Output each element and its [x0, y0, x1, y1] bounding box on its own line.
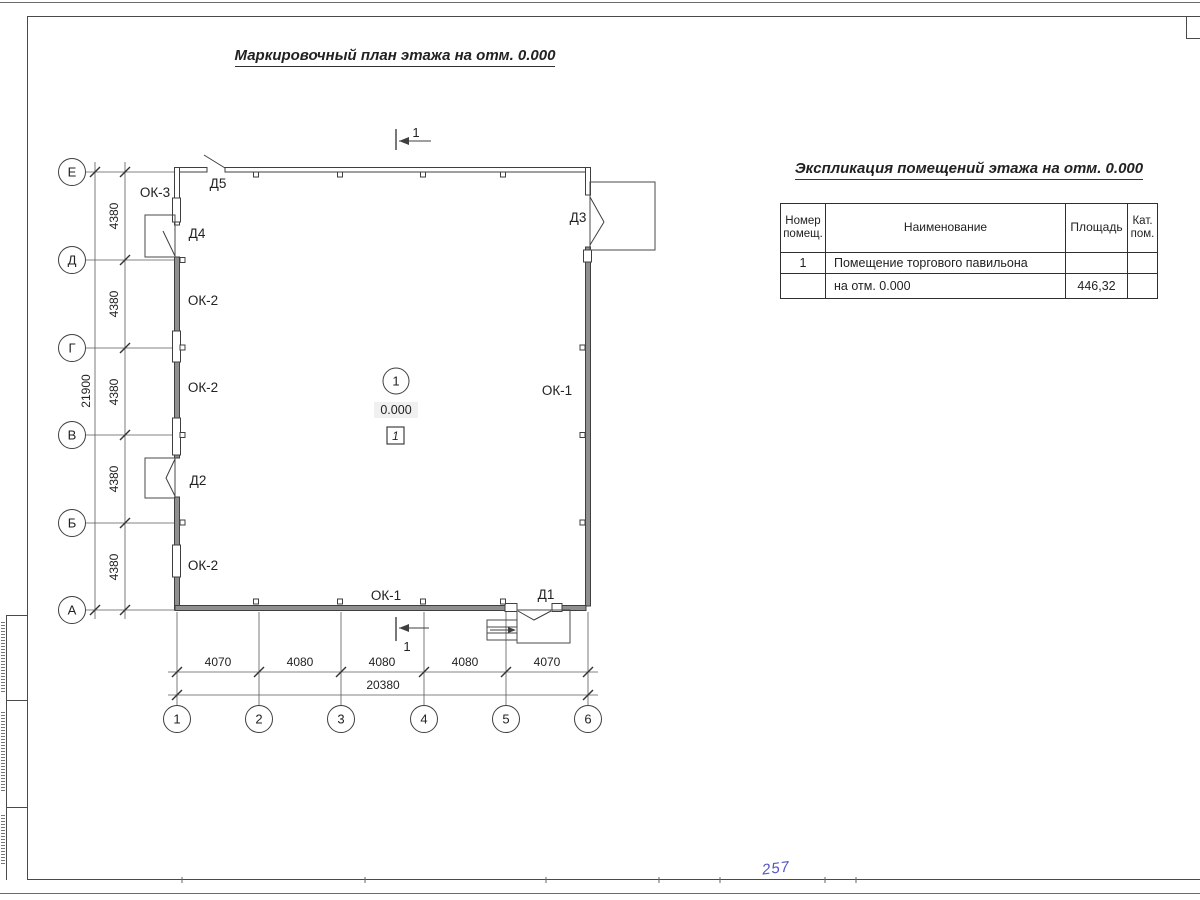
- dim-4380: 4380: [107, 202, 121, 229]
- section-number: 1: [403, 639, 410, 654]
- column-ticks: [180, 172, 585, 604]
- plan-labels: Д5 ОК-3 Д4 ОК-2 ОК-2 Д2 ОК-2 ОК-1 ОК-1 Д…: [140, 176, 587, 603]
- room-number-bubble: 1: [392, 374, 399, 389]
- axis-bubbles: [59, 159, 602, 733]
- dimension-texts: 4380 4380 4380 4380 4380 21900 4070 4080…: [79, 202, 561, 692]
- door-swing-d2: [166, 459, 175, 496]
- dim-4080: 4080: [287, 655, 314, 669]
- porch-d4: [145, 215, 175, 257]
- window-ok2: [173, 418, 181, 455]
- top-wall: [225, 168, 590, 173]
- axis-label-4: 4: [420, 712, 427, 727]
- door-swing-d3: [590, 197, 604, 222]
- axis-labels: Е Д Г В Б А 1 2 3 4 5 6: [68, 165, 592, 727]
- drawing-sheet: Маркировочный план этажа на отм. 0.000 Э…: [0, 0, 1200, 900]
- axis-label-6: 6: [584, 712, 591, 727]
- axis-label-G: Г: [68, 341, 75, 356]
- handwritten-page-mark: 257: [761, 858, 791, 878]
- window-ok1: [584, 250, 592, 262]
- label-window-ok2: ОК-2: [188, 558, 218, 573]
- window-ok2: [173, 331, 181, 362]
- door-swing-d5: [204, 155, 225, 168]
- label-window-ok1: ОК-1: [542, 383, 572, 398]
- door-swings: [163, 155, 604, 620]
- dim-4080: 4080: [452, 655, 479, 669]
- door-swing-d4: [163, 231, 175, 256]
- dim-4380: 4380: [107, 553, 121, 580]
- dim-total-21900: 21900: [79, 374, 93, 408]
- floor-plan-drawing: 4380 4380 4380 4380 4380 21900 4070 4080…: [0, 0, 1200, 900]
- window-ok3: [173, 198, 181, 222]
- axis-label-V: В: [68, 428, 77, 443]
- frame-ticks: [182, 877, 856, 883]
- axis-label-1: 1: [173, 712, 180, 727]
- door-swing-d3: [590, 222, 604, 245]
- dimension-ticks: [90, 167, 593, 700]
- dimension-lines: [95, 162, 598, 695]
- bottom-wall: [175, 606, 517, 611]
- dim-4080: 4080: [369, 655, 396, 669]
- axis-label-5: 5: [502, 712, 509, 727]
- door-swing-d1: [518, 611, 551, 620]
- label-door-d1: Д1: [538, 587, 555, 602]
- label-window-ok1: ОК-1: [371, 588, 401, 603]
- steps-direction-arrow: [490, 627, 516, 633]
- axis-extension-lines: [86, 172, 588, 706]
- label-door-d5: Д5: [210, 176, 227, 191]
- porch-d2: [145, 458, 175, 498]
- axis-label-3: 3: [337, 712, 344, 727]
- label-window-ok3: ОК-3: [140, 185, 170, 200]
- axis-label-B: Б: [68, 516, 77, 531]
- label-door-d4: Д4: [189, 226, 206, 241]
- axis-label-A: А: [68, 603, 77, 618]
- elevation-mark: 0.000: [380, 403, 411, 417]
- section-mark-top: 1: [396, 125, 431, 150]
- dim-4380: 4380: [107, 465, 121, 492]
- label-window-ok2: ОК-2: [188, 380, 218, 395]
- room-tag: 1 0.000 1: [374, 368, 418, 444]
- axis-label-E: Е: [68, 165, 77, 180]
- porch-d3: [590, 182, 655, 250]
- section-number: 1: [412, 125, 419, 140]
- dim-4380: 4380: [107, 378, 121, 405]
- axis-label-D: Д: [68, 253, 77, 268]
- window-ok2: [173, 545, 181, 577]
- window-ok1: [505, 604, 517, 612]
- label-door-d3: Д3: [570, 210, 587, 225]
- dim-4380: 4380: [107, 290, 121, 317]
- right-wall: [586, 247, 591, 606]
- walls: [175, 168, 591, 611]
- axis-label-2: 2: [255, 712, 262, 727]
- label-window-ok2: ОК-2: [188, 293, 218, 308]
- dim-4070: 4070: [534, 655, 561, 669]
- dim-total-20380: 20380: [366, 678, 400, 692]
- label-door-d2: Д2: [190, 473, 207, 488]
- dim-4070: 4070: [205, 655, 232, 669]
- room-number-box: 1: [392, 429, 399, 443]
